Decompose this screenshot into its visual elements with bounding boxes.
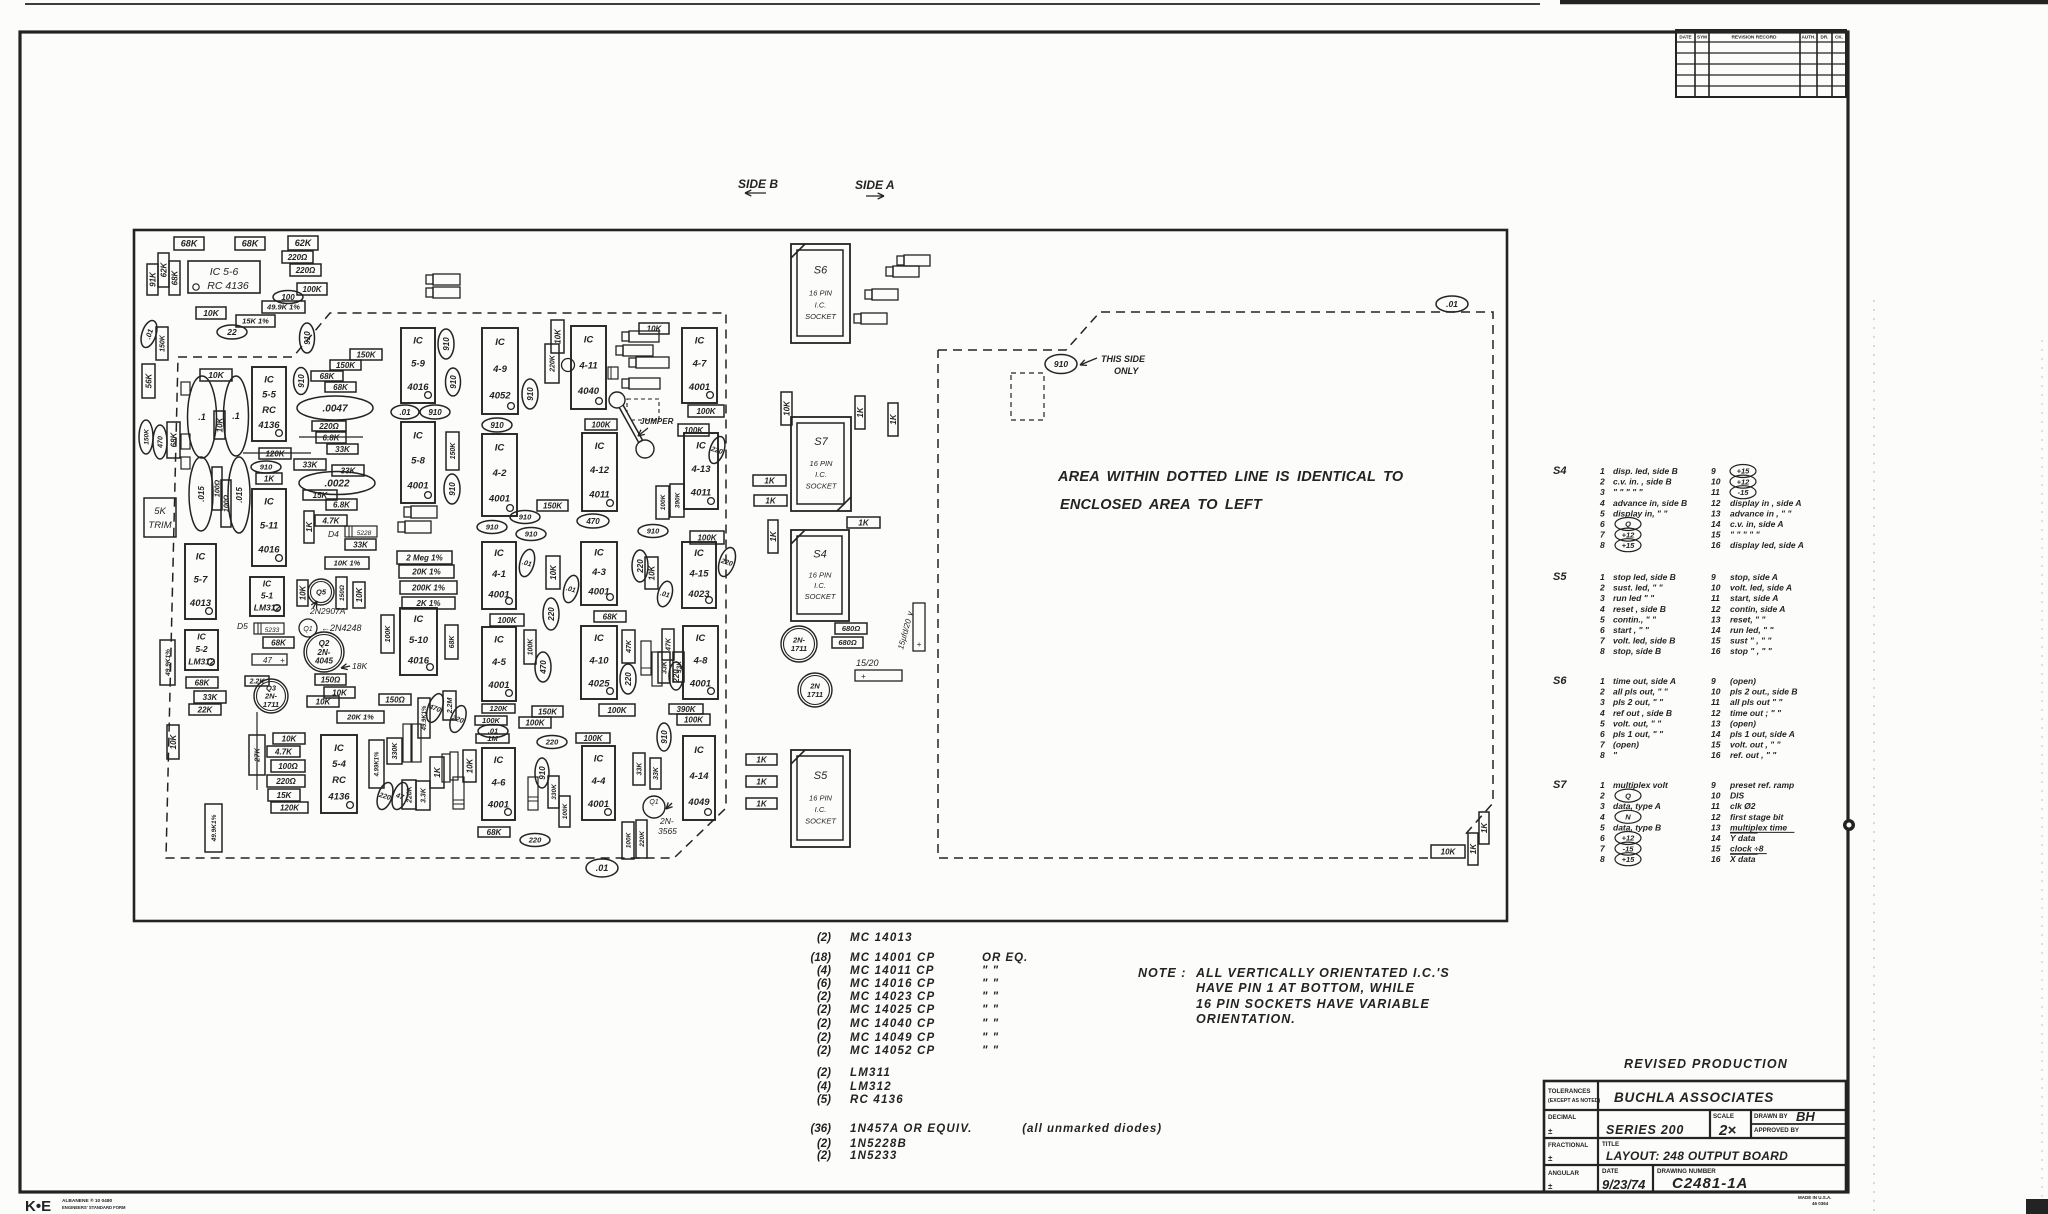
svg-text:15K 1%: 15K 1% <box>242 317 269 326</box>
svg-text:10: 10 <box>1711 477 1721 487</box>
svg-text:1: 1 <box>1600 780 1605 790</box>
svg-text:16: 16 <box>1711 854 1721 864</box>
svg-text:I.C.: I.C. <box>814 581 826 590</box>
svg-text:100K: 100K <box>562 802 569 819</box>
svg-text:REVISION RECORD: REVISION RECORD <box>1731 35 1777 41</box>
svg-text:S5: S5 <box>814 770 828 782</box>
svg-text:-15: -15 <box>1738 488 1750 497</box>
svg-text:1K: 1K <box>764 476 775 485</box>
svg-text:330K: 330K <box>392 742 399 760</box>
svg-text:volt. out , " ": volt. out , " " <box>1730 740 1782 750</box>
svg-text:RC: RC <box>332 775 346 786</box>
svg-text:10K: 10K <box>316 697 332 706</box>
svg-text:+: + <box>917 640 922 649</box>
svg-text:470: 470 <box>585 517 600 526</box>
svg-text:100K: 100K <box>625 831 632 848</box>
svg-text:4011: 4011 <box>588 489 609 500</box>
svg-text:1K: 1K <box>769 530 778 541</box>
svg-text:68K: 68K <box>181 239 199 249</box>
svg-text:470: 470 <box>539 660 548 675</box>
svg-text:stop " , " ": stop " , " " <box>1730 646 1773 656</box>
svg-text:run led, " ": run led, " " <box>1730 625 1774 635</box>
svg-text:stop, side B: stop, side B <box>1613 646 1661 656</box>
svg-text:IC: IC <box>494 634 504 645</box>
svg-text:68K: 68K <box>195 678 211 687</box>
svg-text:±: ± <box>1548 1154 1553 1163</box>
svg-text:3: 3 <box>1600 487 1605 497</box>
svg-text:4045: 4045 <box>314 657 333 666</box>
svg-text:MC 14052 CP: MC 14052 CP <box>850 1045 935 1057</box>
svg-text:910: 910 <box>486 523 499 532</box>
svg-text:8: 8 <box>1600 750 1605 760</box>
svg-text:100Ω: 100Ω <box>224 494 231 512</box>
svg-text:4-15: 4-15 <box>688 568 709 579</box>
svg-text:1711: 1711 <box>791 644 807 653</box>
svg-text:20K 1%: 20K 1% <box>411 567 440 576</box>
svg-text:910: 910 <box>490 421 504 430</box>
svg-text:THIS SIDE: THIS SIDE <box>1101 354 1146 364</box>
svg-text:12: 12 <box>1711 498 1721 508</box>
svg-text:2: 2 <box>1599 583 1605 593</box>
svg-text:47K: 47K <box>626 639 633 654</box>
svg-text:3: 3 <box>1600 697 1605 707</box>
svg-text:SIDE B: SIDE B <box>738 177 778 191</box>
svg-text:c.v. in, side A: c.v. in, side A <box>1730 519 1784 529</box>
svg-text:(2): (2) <box>817 932 831 944</box>
svg-text:RC 4136: RC 4136 <box>850 1094 904 1106</box>
svg-text:4-11: 4-11 <box>578 360 597 371</box>
svg-text:ENCLOSED AREA TO LEFT: ENCLOSED AREA TO LEFT <box>1060 497 1263 513</box>
svg-text:14: 14 <box>1711 833 1721 843</box>
svg-text:1711: 1711 <box>807 690 823 699</box>
svg-text:MC 14011 CP: MC 14011 CP <box>850 965 935 977</box>
svg-text:33K: 33K <box>662 660 669 674</box>
svg-text:68K: 68K <box>487 828 503 837</box>
svg-text:(open): (open) <box>1613 740 1639 750</box>
svg-text:IC: IC <box>494 755 504 766</box>
svg-text:" ": " " <box>982 1032 999 1044</box>
svg-text:DR.: DR. <box>1821 35 1829 40</box>
svg-text:6: 6 <box>1600 833 1605 843</box>
svg-text:D4: D4 <box>328 529 339 539</box>
svg-text:1N5233: 1N5233 <box>850 1150 897 1162</box>
svg-text:IC: IC <box>264 374 274 385</box>
svg-text:10K: 10K <box>215 416 224 432</box>
svg-text:IC: IC <box>595 441 605 452</box>
svg-text:4016: 4016 <box>406 382 429 393</box>
svg-text:AREA WITHIN DOTTED LINE IS: AREA WITHIN DOTTED LINE IS IDENTICAL TO <box>1057 469 1404 485</box>
svg-text:910: 910 <box>449 375 458 389</box>
svg-text:(2): (2) <box>817 1138 831 1150</box>
svg-text:2N-: 2N- <box>317 648 331 657</box>
svg-text:(open): (open) <box>1730 676 1756 686</box>
svg-text:1711: 1711 <box>263 700 279 709</box>
svg-text:IC: IC <box>494 548 504 559</box>
svg-text:220: 220 <box>547 607 556 622</box>
svg-text:REVISED PRODUCTION: REVISED PRODUCTION <box>1624 1057 1788 1071</box>
svg-text:12: 12 <box>1711 604 1721 614</box>
svg-text:5-8: 5-8 <box>411 456 425 467</box>
svg-text:2N2907A: 2N2907A <box>309 606 346 616</box>
svg-text:10: 10 <box>1711 583 1721 593</box>
svg-text:reset , side B: reset , side B <box>1613 604 1666 614</box>
svg-text:MC 14049 CP: MC 14049 CP <box>850 1032 935 1044</box>
svg-text:14: 14 <box>1711 625 1721 635</box>
svg-text:DRAWING NUMBER: DRAWING NUMBER <box>1657 1168 1716 1175</box>
svg-text:IC: IC <box>584 335 594 346</box>
svg-text:data, type B: data, type B <box>1613 822 1661 832</box>
svg-text:100K: 100K <box>607 706 627 715</box>
svg-text:JUMPER: JUMPER <box>640 417 674 426</box>
svg-text:start , " ": start , " " <box>1613 625 1650 635</box>
svg-text:AUTH.: AUTH. <box>1801 35 1815 40</box>
svg-text:(2): (2) <box>817 1045 831 1057</box>
svg-text:HAVE PIN 1 AT BOTTOM,: HAVE PIN 1 AT BOTTOM, WHILE <box>1196 981 1415 995</box>
svg-text:18K: 18K <box>352 661 367 671</box>
svg-text:C2481-1A: C2481-1A <box>1672 1175 1748 1192</box>
svg-text:11: 11 <box>1711 801 1720 811</box>
svg-text:910: 910 <box>1054 359 1068 369</box>
svg-text:4.7K: 4.7K <box>274 747 293 756</box>
svg-text:15: 15 <box>1711 636 1721 646</box>
svg-text:33K: 33K <box>303 460 319 469</box>
svg-text:100K: 100K <box>583 734 603 743</box>
svg-text:4136: 4136 <box>257 420 280 431</box>
svg-text:220K: 220K <box>407 785 414 804</box>
svg-text:4-13: 4-13 <box>690 464 711 475</box>
svg-text:910: 910 <box>519 513 532 522</box>
svg-text:4049: 4049 <box>687 797 710 808</box>
svg-text:4-12: 4-12 <box>589 465 610 476</box>
svg-text:ref out , side B: ref out , side B <box>1613 708 1672 718</box>
svg-text:33K: 33K <box>676 660 683 673</box>
svg-text:.01: .01 <box>596 863 609 873</box>
svg-text:910: 910 <box>303 331 312 345</box>
svg-text:CK.: CK. <box>1835 35 1843 40</box>
svg-text:100K: 100K <box>591 420 611 429</box>
svg-text:(2): (2) <box>817 1004 831 1016</box>
svg-text:5-9: 5-9 <box>411 359 425 370</box>
svg-text:68K: 68K <box>271 638 287 647</box>
svg-text:ALBANENE ® 10 0480: ALBANENE ® 10 0480 <box>62 1197 113 1204</box>
svg-text:8: 8 <box>1600 854 1605 864</box>
svg-text:.015: .015 <box>197 486 206 502</box>
svg-text:47: 47 <box>263 656 272 665</box>
svg-text:IC: IC <box>197 632 206 642</box>
svg-text:68K: 68K <box>169 431 178 447</box>
svg-text:APPROVED BY: APPROVED BY <box>1754 1127 1800 1134</box>
svg-text:2: 2 <box>1599 791 1605 801</box>
svg-text:" ": " " <box>982 991 999 1003</box>
svg-text:15/20: 15/20 <box>856 658 879 668</box>
svg-text:+15: +15 <box>1737 467 1751 476</box>
svg-text:3: 3 <box>1600 593 1605 603</box>
svg-text:advance in , " ": advance in , " " <box>1730 508 1792 518</box>
svg-text:150Ω: 150Ω <box>321 675 341 684</box>
svg-text:5-1: 5-1 <box>261 590 274 600</box>
svg-text:10: 10 <box>1711 791 1721 801</box>
svg-text:Q2: Q2 <box>319 639 330 648</box>
svg-text:" ": " " <box>982 1045 999 1057</box>
svg-text:c.v. in. , side B: c.v. in. , side B <box>1613 477 1672 487</box>
svg-text:6.8K: 6.8K <box>323 433 341 442</box>
svg-text:910: 910 <box>442 337 451 351</box>
svg-text:11: 11 <box>1711 593 1720 603</box>
svg-text:33K: 33K <box>653 766 660 780</box>
svg-text:SCALE: SCALE <box>1713 1113 1734 1120</box>
svg-text:ENGINEERS' STANDARD FORM: ENGINEERS' STANDARD FORM <box>62 1205 126 1210</box>
svg-text:150K: 150K <box>356 350 376 359</box>
svg-text:150Ω: 150Ω <box>339 585 346 601</box>
svg-text:SOCKET: SOCKET <box>805 817 837 826</box>
svg-text:47K: 47K <box>666 637 673 652</box>
svg-text:910: 910 <box>647 527 660 536</box>
svg-text:disp. led, side B: disp. led, side B <box>1613 466 1678 476</box>
svg-text:time out, side A: time out, side A <box>1613 676 1676 686</box>
svg-text:volt. out, " ": volt. out, " " <box>1613 718 1662 728</box>
svg-text:TRIM: TRIM <box>148 520 171 531</box>
svg-text:2K 1%: 2K 1% <box>415 599 440 608</box>
svg-text:4: 4 <box>1599 812 1605 822</box>
svg-text:multiplex time: multiplex time <box>1730 822 1787 832</box>
svg-text:.1: .1 <box>232 411 240 421</box>
svg-text:+15: +15 <box>1622 855 1636 864</box>
svg-text:FRACTIONAL: FRACTIONAL <box>1548 1142 1588 1149</box>
svg-text:1K: 1K <box>858 518 869 527</box>
svg-text:ALL VERTICALLY ORIENTATED: ALL VERTICALLY ORIENTATED I.C.'S <box>1195 966 1450 980</box>
svg-text:49.9K1%: 49.9K1% <box>211 814 218 842</box>
svg-text:(2): (2) <box>817 991 831 1003</box>
svg-text:2: 2 <box>1599 477 1605 487</box>
svg-text:2 Meg 1%: 2 Meg 1% <box>405 553 442 562</box>
svg-text:1K: 1K <box>856 406 865 417</box>
svg-text:I.C.: I.C. <box>815 805 827 814</box>
svg-text:+15: +15 <box>1622 541 1636 550</box>
svg-text:K•E: K•E <box>25 1198 51 1214</box>
svg-text:IC: IC <box>696 441 706 452</box>
svg-text:4001: 4001 <box>406 481 428 492</box>
svg-text:1K: 1K <box>433 766 442 777</box>
svg-text:1K: 1K <box>756 755 767 764</box>
svg-text:10K: 10K <box>298 584 307 600</box>
svg-text:10K: 10K <box>208 370 224 380</box>
svg-text:5-10: 5-10 <box>409 635 429 646</box>
svg-text:volt. led, side A: volt. led, side A <box>1730 583 1792 593</box>
svg-text:5228: 5228 <box>357 530 372 537</box>
svg-text:1K: 1K <box>756 799 767 808</box>
svg-text:IC: IC <box>263 578 272 588</box>
svg-text:10K: 10K <box>169 733 178 749</box>
svg-text:" ": " " <box>982 965 999 977</box>
svg-text:220K: 220K <box>639 830 646 848</box>
svg-text:16: 16 <box>1711 646 1721 656</box>
svg-text:advance in, side B: advance in, side B <box>1613 498 1687 508</box>
svg-text:100K: 100K <box>497 616 517 625</box>
svg-text:150K: 150K <box>543 501 563 510</box>
svg-text:+12: +12 <box>1737 477 1751 486</box>
svg-text:10: 10 <box>1711 687 1721 697</box>
svg-text:IC: IC <box>594 548 604 559</box>
svg-text:100Ω: 100Ω <box>278 762 298 771</box>
svg-text:IC: IC <box>694 745 704 756</box>
svg-text:4-10: 4-10 <box>588 656 609 667</box>
svg-text:S7: S7 <box>814 436 828 448</box>
svg-text:150K: 150K <box>538 707 558 716</box>
svg-text:1K: 1K <box>305 521 314 532</box>
svg-text:LM311: LM311 <box>850 1067 891 1079</box>
svg-text:sust " , " ": sust " , " " <box>1730 636 1772 646</box>
svg-text:100K: 100K <box>385 625 392 643</box>
svg-text:9: 9 <box>1711 466 1716 476</box>
svg-text:Q1: Q1 <box>303 626 312 633</box>
svg-text:(2): (2) <box>817 1067 831 1079</box>
svg-text:stop led, side B: stop led, side B <box>1613 572 1676 582</box>
svg-text:Q5: Q5 <box>316 588 327 597</box>
svg-text:4-5: 4-5 <box>491 657 506 668</box>
svg-text:RC: RC <box>262 405 276 416</box>
svg-text:(6): (6) <box>817 978 831 990</box>
svg-text:100K: 100K <box>525 718 545 727</box>
svg-text:13: 13 <box>1711 822 1721 832</box>
svg-text:910: 910 <box>260 463 273 472</box>
svg-text:200K 1%: 200K 1% <box>411 583 445 592</box>
svg-text:1K: 1K <box>889 413 898 424</box>
svg-text:S4: S4 <box>1553 465 1566 477</box>
svg-text:68K: 68K <box>320 372 336 381</box>
svg-text:68K: 68K <box>170 269 179 285</box>
svg-text:TOLERANCES: TOLERANCES <box>1548 1088 1591 1095</box>
svg-text:9: 9 <box>1711 572 1716 582</box>
svg-text:.0022: .0022 <box>324 479 349 490</box>
svg-text:33K: 33K <box>637 762 644 776</box>
svg-text:9: 9 <box>1711 780 1716 790</box>
svg-text:4: 4 <box>1599 708 1605 718</box>
svg-text:8: 8 <box>1600 540 1605 550</box>
svg-text:4-9: 4-9 <box>492 364 507 375</box>
svg-text:1K: 1K <box>756 777 767 786</box>
svg-text:1: 1 <box>1600 572 1605 582</box>
svg-text:15: 15 <box>1711 844 1721 854</box>
svg-text:220Ω: 220Ω <box>275 777 296 786</box>
svg-text:S7: S7 <box>1553 779 1567 791</box>
svg-text:12: 12 <box>1711 708 1721 718</box>
svg-text:±: ± <box>1548 1127 1553 1136</box>
svg-text:IC: IC <box>414 614 424 625</box>
svg-text:(EXCEPT AS NOTED): (EXCEPT AS NOTED) <box>1548 1098 1601 1104</box>
svg-text:(2): (2) <box>817 1150 831 1162</box>
svg-text:4052: 4052 <box>488 391 511 402</box>
svg-text:910: 910 <box>297 374 306 388</box>
svg-text:46 0364: 46 0364 <box>1812 1201 1829 1206</box>
svg-text:1K: 1K <box>264 474 275 483</box>
svg-text:220Ω: 220Ω <box>287 253 308 262</box>
svg-text:27K: 27K <box>253 748 262 763</box>
svg-text:SOCKET: SOCKET <box>806 481 838 490</box>
svg-text:time out ; " ": time out ; " " <box>1730 708 1782 718</box>
svg-text:10K: 10K <box>355 586 364 602</box>
svg-text:4025: 4025 <box>587 678 610 689</box>
svg-text:SIDE A: SIDE A <box>855 178 895 192</box>
svg-text:S5: S5 <box>1553 571 1567 583</box>
svg-text:16 PIN: 16 PIN <box>809 793 833 802</box>
svg-text:+12: +12 <box>1622 834 1636 843</box>
svg-text:←2N4248: ←2N4248 <box>321 623 362 633</box>
svg-text:.015: .015 <box>235 487 244 503</box>
svg-text:470: 470 <box>158 436 165 449</box>
svg-text:MC 14016 CP: MC 14016 CP <box>850 978 935 990</box>
svg-text:13: 13 <box>1711 508 1721 518</box>
svg-text:SOCKET: SOCKET <box>805 312 837 321</box>
svg-text:5-4: 5-4 <box>332 759 346 770</box>
svg-text:IC: IC <box>696 633 706 644</box>
svg-text:clk Ø2: clk Ø2 <box>1730 801 1756 811</box>
svg-text:MADE IN U.S.A.: MADE IN U.S.A. <box>1798 1195 1832 1200</box>
svg-text:(2): (2) <box>817 1018 831 1030</box>
svg-text:5233: 5233 <box>265 627 280 634</box>
svg-text:ORIENTATION.: ORIENTATION. <box>1196 1012 1296 1026</box>
svg-text:16: 16 <box>1711 750 1721 760</box>
svg-text:stop, side A: stop, side A <box>1730 572 1778 582</box>
svg-text:IC: IC <box>594 753 604 764</box>
svg-text:SYM: SYM <box>1697 35 1707 40</box>
svg-text:Q1: Q1 <box>649 799 658 806</box>
svg-text:15: 15 <box>1711 530 1721 540</box>
svg-text:-15: -15 <box>1623 844 1635 853</box>
svg-text:33K: 33K <box>203 693 219 702</box>
svg-text:10K: 10K <box>203 308 219 318</box>
svg-text:1N457A OR EQUIV.: 1N457A OR EQUIV. <box>850 1123 973 1135</box>
svg-text:4-4: 4-4 <box>591 776 606 787</box>
svg-text:volt. led, side B: volt. led, side B <box>1613 636 1675 646</box>
svg-text:10K: 10K <box>465 757 474 773</box>
svg-text:62K: 62K <box>159 261 168 277</box>
svg-text:330K: 330K <box>551 783 558 800</box>
svg-text:120K: 120K <box>265 449 285 458</box>
svg-text:IC: IC <box>196 551 206 562</box>
svg-text:" ": " " <box>982 978 999 990</box>
svg-text:+: + <box>861 672 866 681</box>
svg-text:6: 6 <box>1600 519 1605 529</box>
svg-text:pls 2 out, " ": pls 2 out, " " <box>1612 697 1664 707</box>
svg-text:150K: 150K <box>450 442 457 460</box>
svg-text:(36): (36) <box>811 1123 832 1135</box>
svg-text:4-14: 4-14 <box>688 771 709 782</box>
svg-text:14: 14 <box>1711 729 1721 739</box>
svg-text:16 PIN: 16 PIN <box>809 289 833 298</box>
svg-text:contin, side A: contin, side A <box>1730 604 1785 614</box>
svg-text:.01: .01 <box>399 408 411 417</box>
svg-text:120K: 120K <box>490 704 509 713</box>
svg-text:910: 910 <box>526 387 535 401</box>
svg-text:2: 2 <box>1599 687 1605 697</box>
svg-text:220: 220 <box>636 559 645 574</box>
svg-text:10K: 10K <box>647 564 656 580</box>
svg-text:IC: IC <box>413 430 423 441</box>
svg-text:MC 14025 CP: MC 14025 CP <box>850 1004 935 1016</box>
svg-text:OR EQ.: OR EQ. <box>982 952 1028 964</box>
svg-text:4-3: 4-3 <box>591 567 606 578</box>
svg-text:pls 1 out, side A: pls 1 out, side A <box>1729 729 1795 739</box>
svg-text:IC: IC <box>594 633 604 644</box>
svg-text:1M: 1M <box>487 734 498 743</box>
svg-text:390K: 390K <box>676 705 696 714</box>
svg-text:3565: 3565 <box>658 826 677 836</box>
svg-text:220Ω: 220Ω <box>318 422 339 431</box>
svg-text:49.9K1%: 49.9K1% <box>165 649 172 677</box>
svg-text:(4): (4) <box>817 1081 831 1093</box>
svg-text:15K: 15K <box>277 791 293 800</box>
svg-text:NOTE :: NOTE : <box>1138 966 1186 980</box>
